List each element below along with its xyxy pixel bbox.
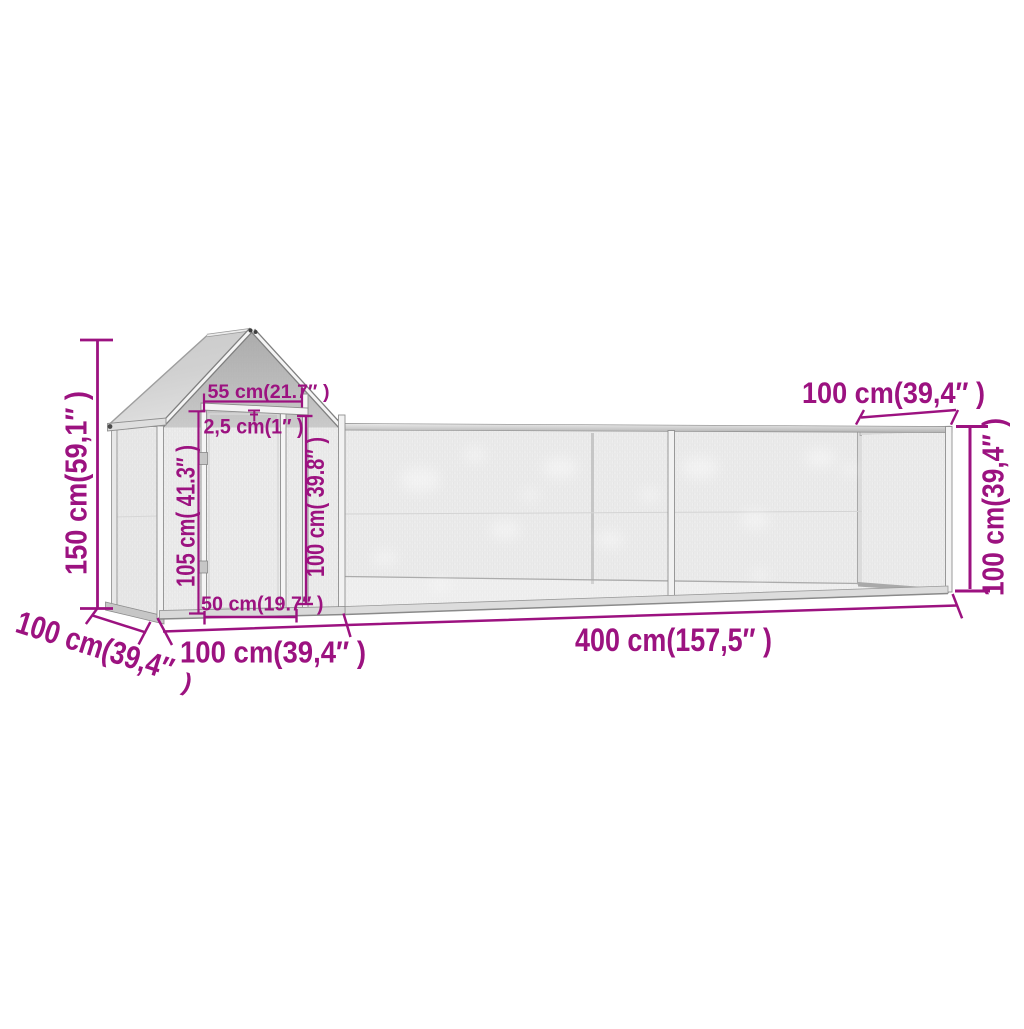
svg-text:100 cm( 39.8″ ): 100 cm( 39.8″ ) [302, 437, 330, 577]
svg-text:2,5 cm(1″ ): 2,5 cm(1″ ) [204, 416, 304, 439]
svg-text:55 cm(21.7″ ): 55 cm(21.7″ ) [208, 381, 330, 403]
svg-text:150 cm(59,1″ ): 150 cm(59,1″ ) [59, 391, 94, 575]
svg-text:100 cm(39,4″ ): 100 cm(39,4″ ) [180, 635, 366, 670]
svg-text:100 cm(39,4″ ): 100 cm(39,4″ ) [976, 418, 1011, 596]
svg-text:400 cm(157,5″ ): 400 cm(157,5″ ) [575, 622, 772, 658]
svg-text:100 cm(39,4″ ): 100 cm(39,4″ ) [802, 377, 985, 410]
svg-text:105 cm( 41.3″ ): 105 cm( 41.3″ ) [171, 445, 201, 587]
svg-text:50 cm(19.7″ ): 50 cm(19.7″ ) [201, 594, 324, 616]
